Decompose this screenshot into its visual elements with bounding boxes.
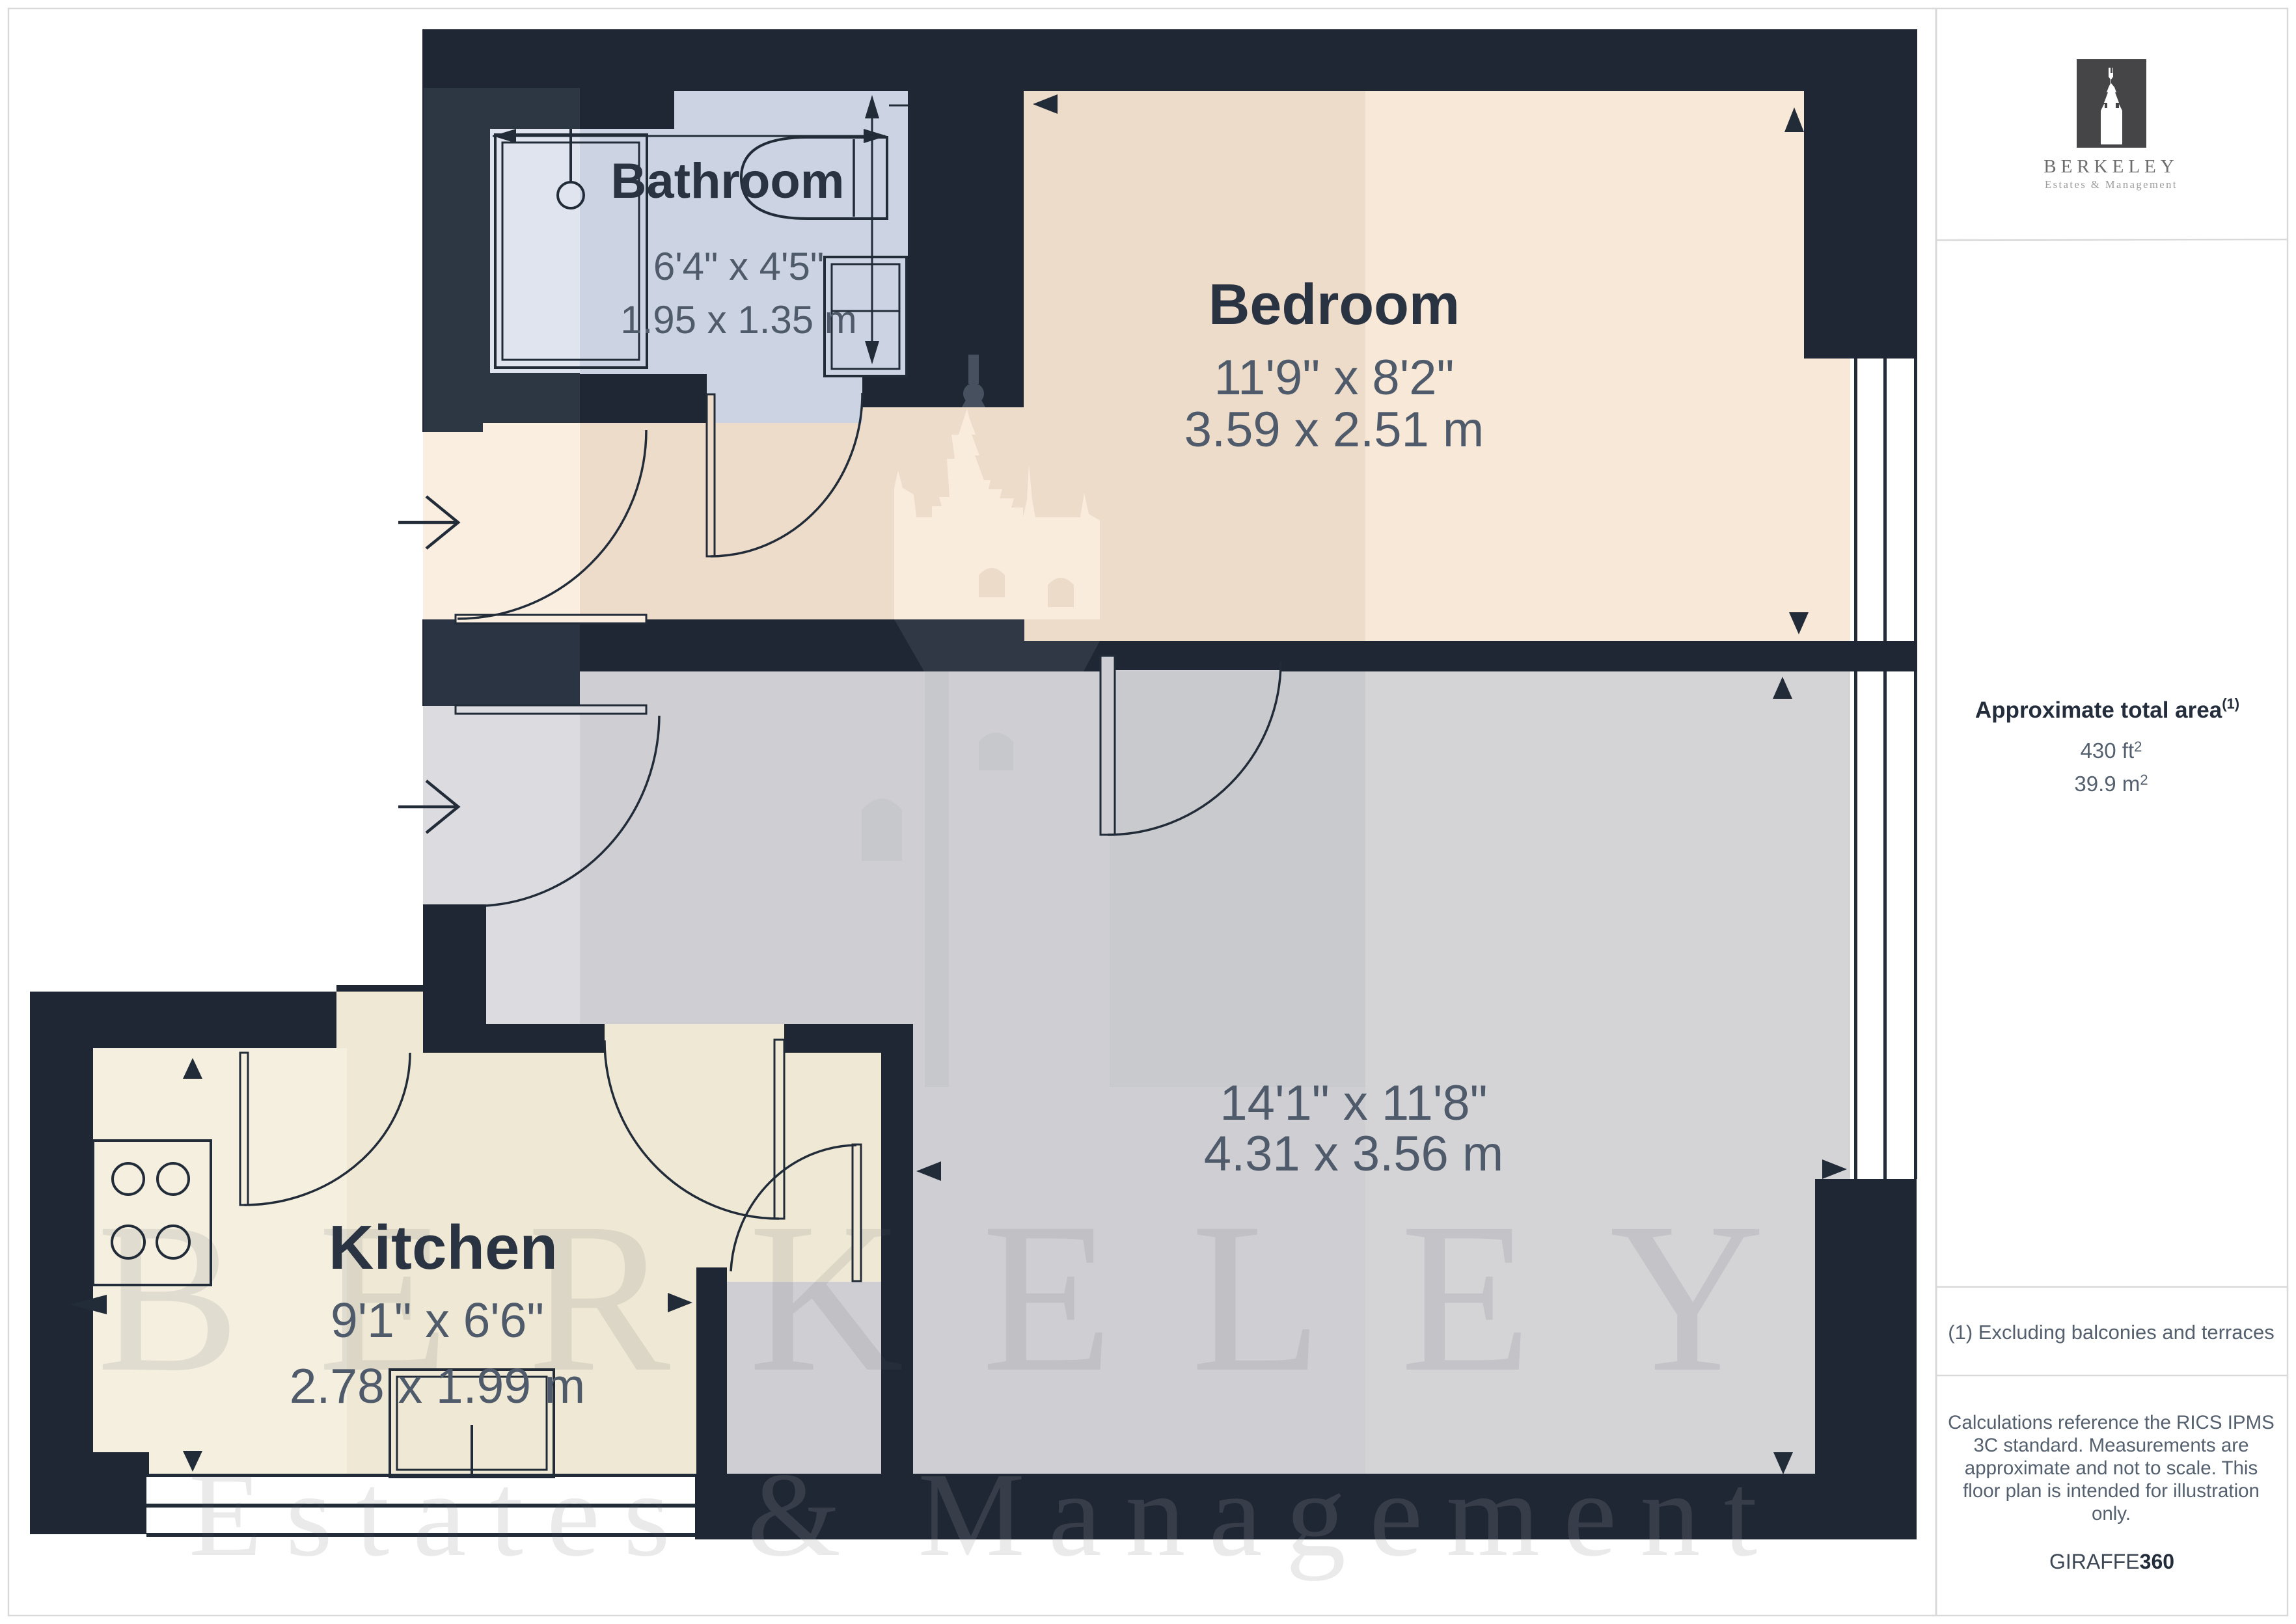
svg-text:11'9" x 8'2": 11'9" x 8'2" (1214, 350, 1455, 405)
svg-text:2.78 x 1.99 m: 2.78 x 1.99 m (290, 1359, 585, 1413)
svg-text:GIRAFFE360: GIRAFFE360 (2049, 1550, 2174, 1573)
svg-text:Calculations reference the RIC: Calculations reference the RICS IPMS (1948, 1412, 2275, 1433)
svg-text:4.31 x 3.56 m: 4.31 x 3.56 m (1204, 1126, 1504, 1182)
svg-text:14'1" x 11'8": 14'1" x 11'8" (1220, 1076, 1487, 1131)
svg-text:only.: only. (2092, 1503, 2131, 1524)
svg-text:Approximate total area(1): Approximate total area(1) (1975, 696, 2239, 723)
svg-text:BERKELEY: BERKELEY (2043, 156, 2178, 177)
svg-text:approximate and not to scale.: approximate and not to scale. This (1965, 1457, 2258, 1479)
svg-text:Kitchen: Kitchen (329, 1213, 558, 1282)
svg-text:430 ft2: 430 ft2 (2081, 738, 2142, 763)
svg-text:1.95 x 1.35 m: 1.95 x 1.35 m (620, 298, 857, 342)
svg-text:6'4" x 4'5": 6'4" x 4'5" (653, 245, 824, 288)
svg-text:Estates & Management: Estates & Management (2045, 178, 2178, 191)
svg-text:floor plan is intended for ill: floor plan is intended for illustration (1963, 1480, 2260, 1502)
svg-text:3C standard. Measurements are: 3C standard. Measurements are (1973, 1435, 2248, 1456)
svg-text:3.59 x 2.51 m: 3.59 x 2.51 m (1184, 402, 1484, 457)
svg-text:Bedroom: Bedroom (1209, 272, 1460, 336)
svg-text:(1) Excluding balconies and te: (1) Excluding balconies and terraces (1948, 1321, 2274, 1344)
svg-text:39.9 m2: 39.9 m2 (2074, 772, 2148, 796)
svg-text:Bathroom: Bathroom (611, 154, 845, 209)
svg-text:9'1" x 6'6": 9'1" x 6'6" (331, 1293, 544, 1347)
